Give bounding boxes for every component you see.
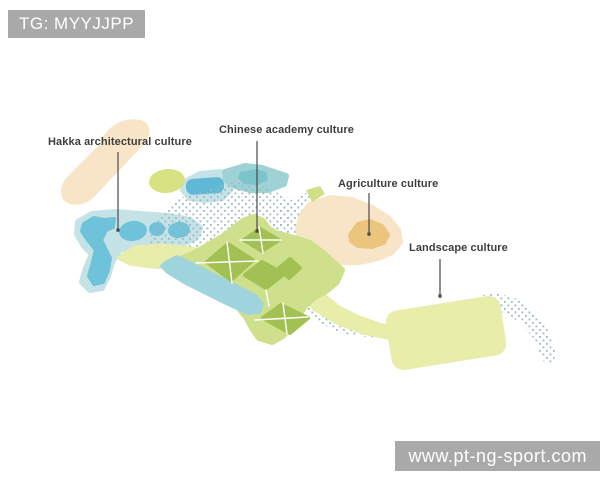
landscape-meadow-rect xyxy=(384,294,508,371)
diagram-canvas: Hakka architectural culture Chinese acad… xyxy=(0,0,600,480)
zone-label-agriculture: Agriculture culture xyxy=(338,178,438,190)
agriculture-leader-dot xyxy=(367,233,370,236)
hakka-zone-shape xyxy=(61,112,150,205)
zone-label-landscape: Landscape culture xyxy=(409,242,508,254)
landscape-leader-dot xyxy=(438,295,441,298)
watermark-top-left: TG: MYYJJPP xyxy=(8,10,145,38)
site-plan-art xyxy=(0,0,600,480)
zone-label-academy: Chinese academy culture xyxy=(219,124,354,136)
watermark-bottom-right: www.pt-ng-sport.com xyxy=(395,441,600,471)
academy-leader-dot xyxy=(255,230,258,233)
hakka-leader-dot xyxy=(116,229,119,232)
zone-label-hakka: Hakka architectural culture xyxy=(48,136,192,148)
